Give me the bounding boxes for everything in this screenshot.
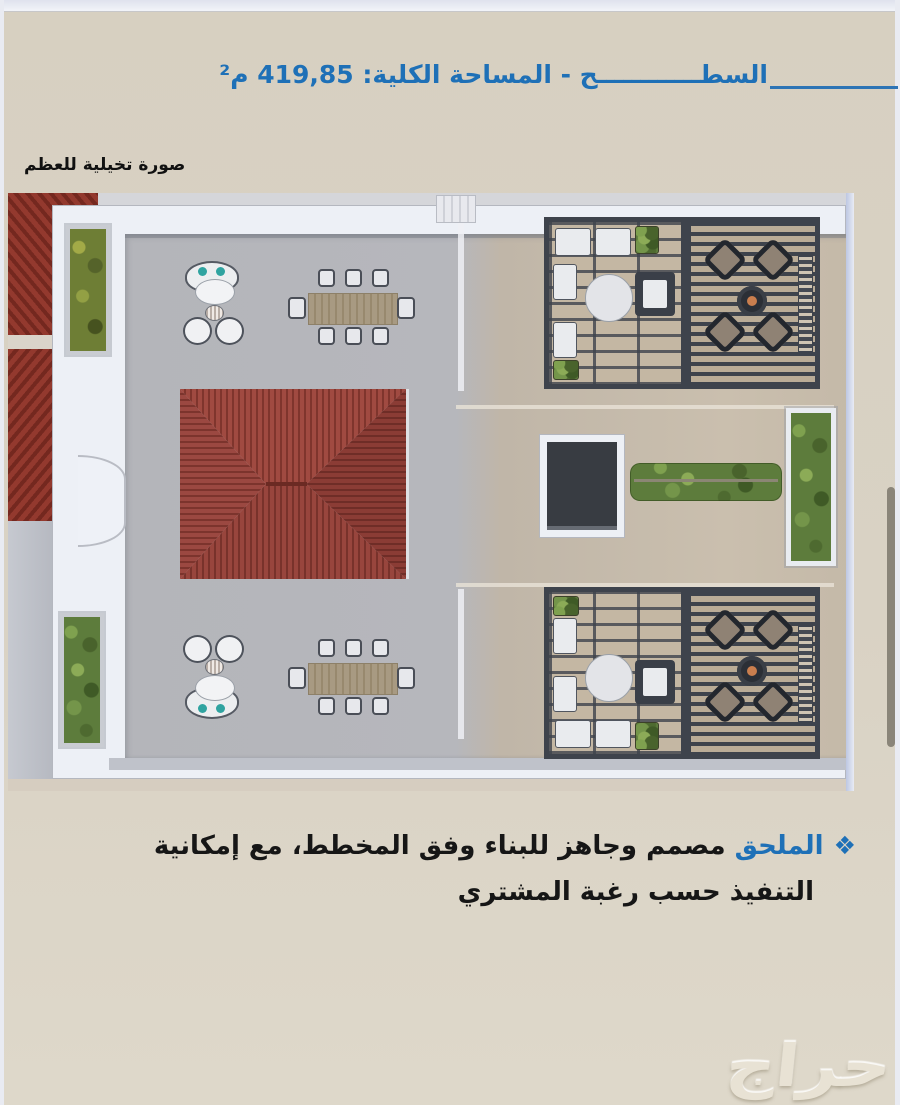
lounge-set-top: [182, 259, 246, 347]
brochure-page: السطــــــــــــح - المساحة الكلية: 419,…: [0, 0, 900, 1105]
x-lounge-chair: [702, 237, 747, 282]
lounge-set-bottom: [182, 633, 246, 721]
tub-chair: [183, 317, 212, 345]
planter-left-top: [66, 225, 110, 355]
dining-chair: [372, 639, 389, 657]
pergola-sofa: [555, 720, 591, 748]
outside-left-wall: [8, 521, 58, 779]
teal-cushion: [216, 267, 225, 276]
arched-wall-niche: [78, 455, 126, 547]
scrollbar-thumb[interactable]: [887, 487, 895, 747]
planter-left-bottom: [60, 613, 104, 747]
tub-chair: [215, 635, 244, 663]
roof-vent-block: [436, 195, 476, 223]
title-decorative-line: [770, 86, 898, 89]
note-paragraph: ❖الملحق مصمم وجاهز للبناء وفق المخطط، مع…: [86, 824, 856, 915]
tub-chair: [183, 635, 212, 663]
dining-chair: [318, 697, 335, 715]
diamond-bullet-icon: ❖: [834, 831, 856, 860]
round-rug: [585, 654, 633, 702]
slat-pergola-top: [686, 217, 820, 389]
round-table: [195, 675, 235, 701]
teal-cushion: [216, 704, 225, 713]
fire-table: [737, 656, 767, 686]
note-lead-word: الملحق: [735, 831, 824, 861]
dining-table: [308, 663, 398, 695]
dining-set-top: [288, 269, 416, 347]
pergola-armchair: [635, 660, 675, 704]
bottom-wall-ledge: [109, 758, 854, 770]
dining-chair: [372, 269, 389, 287]
x-lounge-chair: [750, 679, 795, 724]
pergola-sofa: [553, 264, 577, 300]
interior-wall-line-top: [458, 223, 464, 391]
x-lounge-chair: [750, 309, 795, 354]
potted-plant: [635, 722, 659, 750]
dining-table: [308, 293, 398, 325]
dining-chair: [318, 327, 335, 345]
floor-seam-upper: [456, 405, 834, 409]
potted-plant: [553, 596, 579, 616]
rooftop-render-image: [8, 193, 854, 791]
pergola-sofa: [553, 676, 577, 712]
dining-chair: [345, 697, 362, 715]
x-lounge-chair: [702, 309, 747, 354]
scrollbar-track[interactable]: [895, 0, 900, 1105]
window-top-strip: [0, 0, 900, 12]
x-lounge-chair: [702, 607, 747, 652]
pergola-bench: [798, 256, 813, 352]
pergola-sofa: [553, 322, 577, 358]
slat-pergola-bottom: [686, 587, 820, 759]
side-table: [205, 659, 224, 675]
dining-chair: [318, 639, 335, 657]
roof-ridge: [266, 482, 307, 486]
dining-chair: [397, 297, 415, 319]
hedge-row: [630, 463, 782, 501]
dining-chair: [372, 327, 389, 345]
page-left-edge: [0, 0, 4, 1105]
potted-plant: [553, 360, 579, 380]
round-rug: [585, 274, 633, 322]
dining-chair: [345, 639, 362, 657]
dining-chair: [288, 297, 306, 319]
render-right-edge: [846, 193, 854, 791]
fire-table: [737, 286, 767, 316]
planter-right: [786, 408, 836, 566]
dining-set-bottom: [288, 639, 416, 717]
note-body-text: مصمم وجاهز للبناء وفق المخطط، مع إمكانية…: [154, 831, 814, 907]
round-table: [195, 279, 235, 305]
dining-chair: [318, 269, 335, 287]
dining-chair: [397, 667, 415, 689]
potted-plant: [635, 226, 659, 254]
grid-pergola-top: [544, 217, 686, 389]
haraj-watermark: حراج: [723, 1032, 895, 1100]
dining-chair: [288, 667, 306, 689]
pergola-sofa: [595, 228, 631, 256]
tub-chair: [215, 317, 244, 345]
dining-chair: [345, 269, 362, 287]
dining-chair: [345, 327, 362, 345]
red-hip-roof: [180, 389, 406, 579]
pergola-armchair: [635, 272, 675, 316]
x-lounge-chair: [702, 679, 747, 724]
x-lounge-chair: [750, 607, 795, 652]
pergola-bench: [798, 626, 813, 722]
stairwell-opening: [540, 435, 624, 537]
teal-cushion: [198, 704, 207, 713]
teal-cushion: [198, 267, 207, 276]
page-title: السطــــــــــــح - المساحة الكلية: 419,…: [219, 60, 768, 89]
pergola-sofa: [555, 228, 591, 256]
interior-wall-line-bottom: [458, 589, 464, 739]
grid-pergola-bottom: [544, 587, 686, 759]
dining-chair: [372, 697, 389, 715]
x-lounge-chair: [750, 237, 795, 282]
render-caption: صورة تخيلية للعظم: [24, 155, 185, 175]
pergola-sofa: [553, 618, 577, 654]
pergola-sofa: [595, 720, 631, 748]
